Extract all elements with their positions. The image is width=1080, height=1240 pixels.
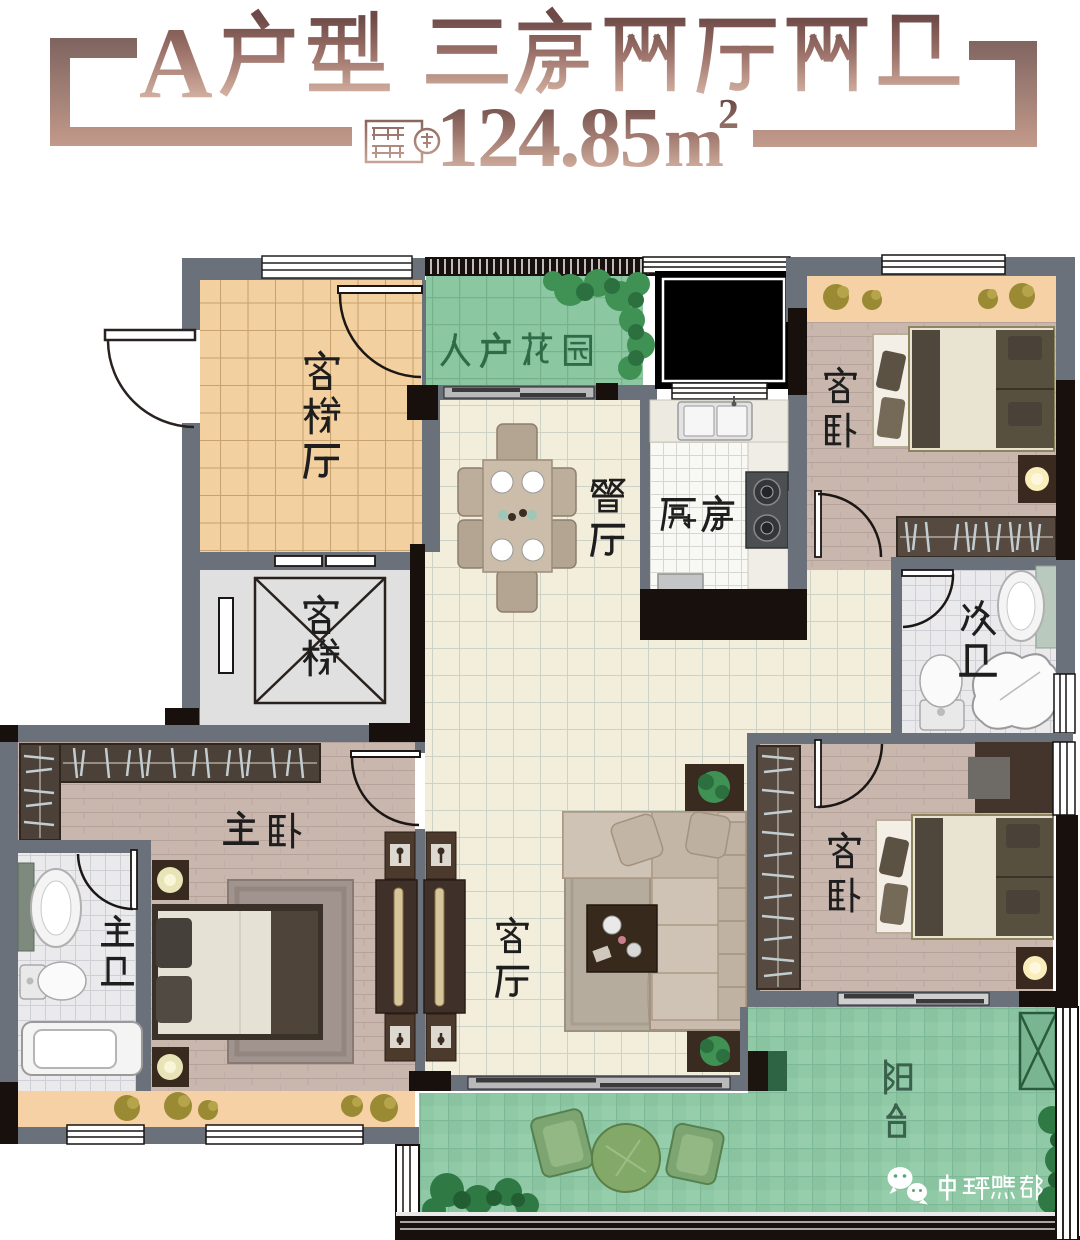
svg-text:124.85: 124.85 [436, 89, 661, 185]
svg-text:A: A [139, 7, 213, 120]
svg-text:2: 2 [718, 92, 739, 138]
svg-text:m: m [664, 102, 724, 182]
